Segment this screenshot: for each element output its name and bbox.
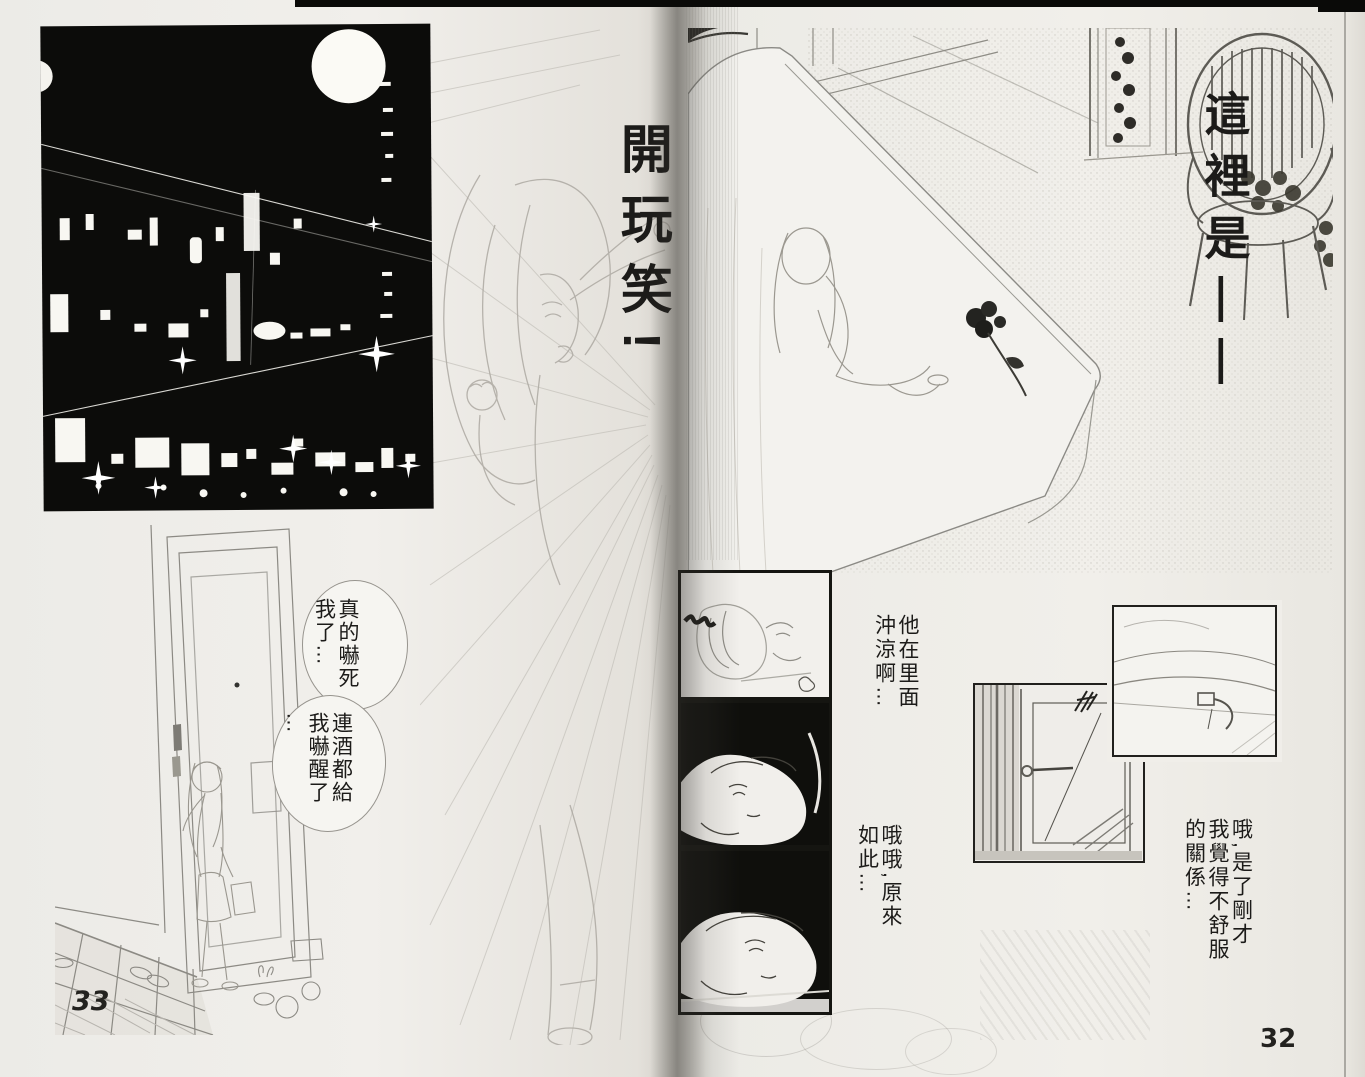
page-number-32: 32 (1260, 1024, 1296, 1054)
moon (40, 29, 386, 106)
thought-col: 我覺得不舒服 (1206, 818, 1230, 962)
lit-windows (49, 82, 416, 500)
inset-detail-panel (1112, 605, 1277, 757)
closeup-panel-1 (678, 570, 832, 700)
motion-line (1045, 713, 1101, 841)
closeup-panel-2 (678, 700, 832, 848)
page-number-33: 33 (72, 986, 110, 1017)
speech-col: 真的嚇死 (336, 598, 360, 690)
night-city-panel (40, 24, 433, 512)
thought-col: 他在里面 (896, 614, 920, 710)
thought-col: 哦,是了剛才 (1229, 818, 1253, 962)
corner-hatch (1073, 809, 1133, 852)
sfx-kaiwanxiao: 開玩笑! (612, 122, 670, 367)
caption-here-is: 這裡是—— (1198, 90, 1250, 400)
scan-top-edge (295, 0, 1365, 7)
girl-at-door-sketch (183, 762, 255, 990)
closeup-panel-3 (678, 848, 832, 1015)
manga-double-page-scan: 真的嚇死 我了… 連酒都給 我嚇醒了 … 開玩笑! 33 (0, 0, 1365, 1077)
faint-tatami-hatch (980, 930, 1150, 1040)
speech-col: 我了… (312, 598, 336, 690)
speech-col: 連酒都給 (329, 712, 353, 804)
thought-col: 沖涼啊… (872, 614, 896, 710)
speech-text-scared: 真的嚇死 我了… (312, 598, 359, 690)
thought-col: 如此… (855, 824, 879, 929)
thought-realize: 哦哦,原來 如此… (855, 824, 902, 929)
speech-text-sober: 連酒都給 我嚇醒了 … (282, 712, 353, 804)
scan-top-corner (1318, 0, 1365, 12)
thought-col: 哦哦,原來 (879, 824, 903, 929)
speech-col: … (282, 712, 306, 804)
floor-shadow (975, 851, 1142, 860)
corner-lines (1232, 721, 1275, 755)
thought-col: 的關係… (1182, 818, 1206, 962)
inset-detail-art (1114, 607, 1275, 755)
closeup-1-art (681, 573, 829, 697)
tub-edge-lines (1114, 620, 1275, 715)
sfx-rattle (1075, 691, 1097, 712)
night-city-art (40, 24, 433, 512)
hair-wisp (809, 733, 820, 813)
closeup-2-art (681, 703, 829, 845)
sleeping-face-sketch (697, 604, 815, 691)
thought-shower: 他在里面 沖涼啊… (872, 614, 919, 710)
genkan-floor (55, 923, 213, 1035)
face-highlight (681, 755, 806, 845)
page-edge-line (1344, 0, 1346, 1077)
thought-reason: 哦,是了剛才 我覺得不舒服 的關係… (1182, 818, 1253, 962)
speech-col: 我嚇醒了 (306, 712, 330, 804)
closeup-3-art (681, 851, 829, 1012)
door-hardware (172, 683, 240, 778)
